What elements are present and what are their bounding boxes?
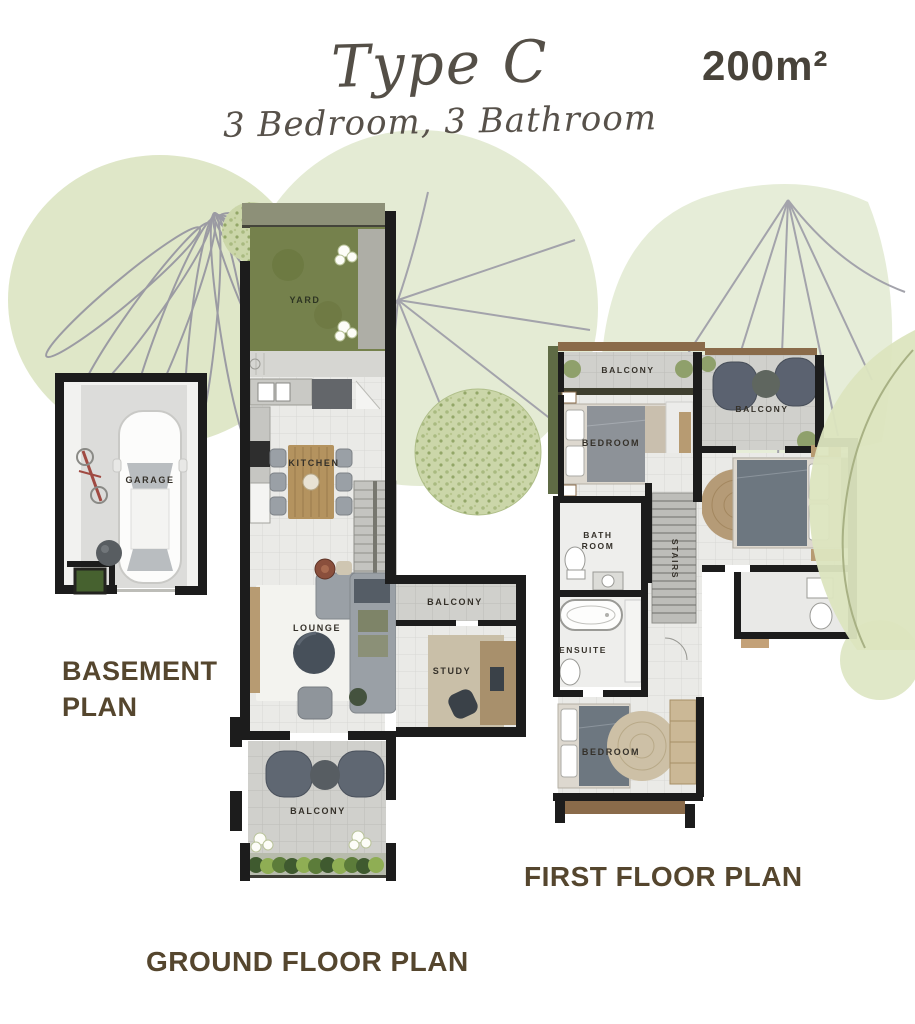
room-label-bathroom: BATH ROOM: [574, 530, 622, 552]
room-label-balcony-front: BALCONY: [290, 806, 346, 816]
plant-icon: [563, 360, 581, 378]
floorplan-sheet: Type C 3 Bedroom, 3 Bathroom 200m²: [0, 0, 915, 1024]
page-subtitle: 3 Bedroom, 3 Bathroom: [220, 98, 661, 146]
nightstand: [562, 485, 576, 496]
round-rug-icon: [607, 711, 677, 781]
sink-icon: [807, 578, 833, 598]
round-table-icon: [752, 370, 780, 398]
room-label-ensuite: ENSUITE: [559, 645, 607, 655]
room-label-garage: GARAGE: [125, 475, 174, 485]
ground-floor-drawing: [228, 195, 528, 895]
deck-strip: [558, 342, 705, 351]
armchair-icon: [298, 687, 332, 719]
round-table-icon: [96, 540, 122, 566]
room-label-kitchen: KITCHEN: [288, 458, 339, 468]
page-title: Type C: [259, 25, 621, 102]
hedge: [548, 346, 558, 494]
bathtub-icon: [560, 600, 622, 630]
ground-floor-plan: YARD KITCHEN LOUNGE BALCONY STUDY BALCON…: [228, 195, 528, 895]
toilet-icon: [810, 603, 832, 629]
hedge: [242, 203, 385, 227]
planter-bushes: [248, 857, 384, 874]
toilet-icon: [560, 659, 580, 685]
ground-floor-plan-title: GROUND FLOOR PLAN: [146, 946, 469, 978]
room-label-balcony-side: BALCONY: [427, 597, 483, 607]
car-icon: [113, 411, 187, 583]
room-label-yard: YARD: [289, 295, 320, 305]
round-table-icon: [310, 760, 340, 790]
room-label-bedroom-bottom: BEDROOM: [582, 747, 640, 757]
basement-plan: GARAGE: [55, 373, 215, 623]
path: [250, 351, 385, 377]
basement-plan-drawing: [55, 373, 215, 623]
plant-icon: [675, 360, 693, 378]
ottoman-icon: [293, 632, 335, 674]
nightstand: [811, 549, 841, 561]
first-floor-plan: BALCONY BALCONY BEDROOM BATH ROOM STAIRS…: [545, 338, 875, 828]
floor-area-value: 200m²: [702, 42, 828, 90]
first-floor-plan-title: FIRST FLOOR PLAN: [524, 861, 803, 893]
dining-table-icon: [270, 445, 352, 519]
cushion: [336, 561, 352, 575]
room-label-study: STUDY: [433, 666, 472, 676]
planter-box-icon: [75, 569, 105, 593]
basement-plan-title: BASEMENT PLAN: [62, 653, 237, 726]
room-label-bedroom-top: BEDROOM: [582, 438, 640, 448]
room-label-balcony-right: BALCONY: [735, 404, 788, 414]
room-label-stairs: STAIRS: [670, 539, 680, 579]
nightstand: [562, 392, 576, 403]
plant-icon: [700, 356, 716, 372]
closet: [625, 600, 641, 682]
room-label-lounge: LOUNGE: [293, 623, 341, 633]
room-label-balcony-left: BALCONY: [601, 365, 654, 375]
plant-icon: [349, 688, 367, 706]
deck-strip: [563, 801, 685, 814]
bed-icon: [733, 458, 855, 548]
